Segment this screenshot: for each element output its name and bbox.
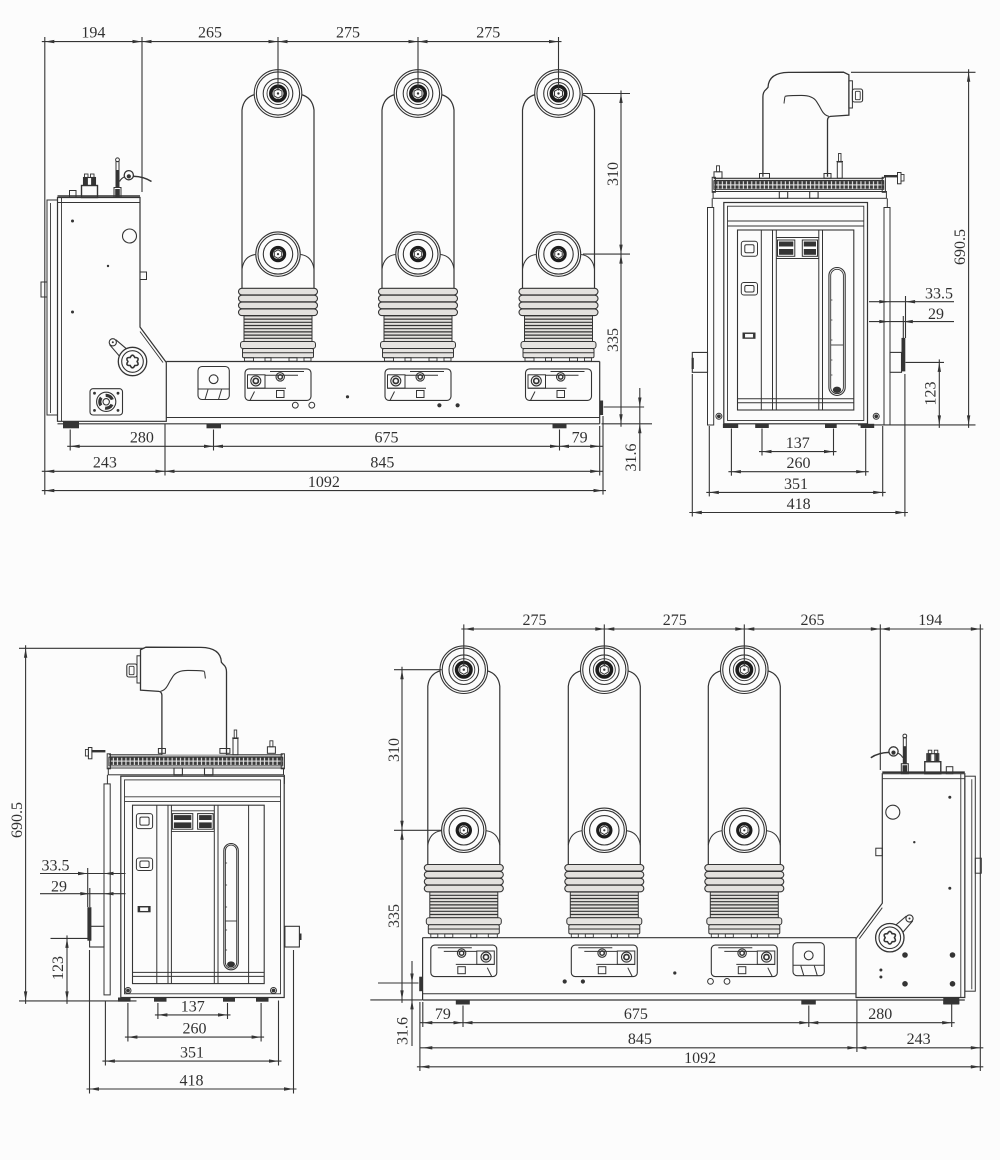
svg-text:275: 275 [663,612,687,629]
svg-text:845: 845 [370,455,394,472]
svg-text:79: 79 [572,430,588,447]
svg-text:265: 265 [801,612,825,629]
svg-text:137: 137 [181,999,205,1016]
svg-text:675: 675 [375,430,399,447]
svg-text:280: 280 [130,430,154,447]
svg-text:137: 137 [786,435,810,452]
svg-text:310: 310 [386,738,403,762]
svg-text:31.6: 31.6 [395,1017,412,1045]
svg-text:275: 275 [476,25,500,42]
svg-text:845: 845 [628,1031,652,1048]
svg-text:29: 29 [51,879,67,896]
svg-text:243: 243 [93,455,117,472]
svg-text:33.5: 33.5 [42,858,70,875]
svg-text:123: 123 [923,382,940,406]
svg-text:29: 29 [928,306,944,323]
svg-text:194: 194 [81,25,105,42]
svg-text:690.5: 690.5 [952,229,969,265]
svg-text:351: 351 [784,476,808,493]
svg-text:690.5: 690.5 [9,802,26,838]
svg-text:123: 123 [50,956,67,980]
svg-text:335: 335 [386,904,403,928]
svg-text:351: 351 [180,1045,204,1062]
svg-text:418: 418 [180,1072,204,1089]
svg-text:275: 275 [523,612,547,629]
svg-text:310: 310 [605,162,622,186]
svg-text:260: 260 [787,455,811,472]
svg-text:33.5: 33.5 [925,286,953,303]
svg-text:79: 79 [435,1006,451,1023]
svg-text:280: 280 [868,1006,892,1023]
svg-text:1092: 1092 [308,474,340,491]
svg-text:243: 243 [907,1031,931,1048]
svg-text:265: 265 [198,25,222,42]
svg-text:335: 335 [605,328,622,352]
svg-text:675: 675 [624,1006,648,1023]
svg-text:260: 260 [183,1021,207,1038]
svg-text:418: 418 [787,496,811,513]
svg-text:275: 275 [336,25,360,42]
svg-text:1092: 1092 [684,1050,716,1067]
svg-text:31.6: 31.6 [623,444,640,472]
svg-text:194: 194 [918,612,942,629]
